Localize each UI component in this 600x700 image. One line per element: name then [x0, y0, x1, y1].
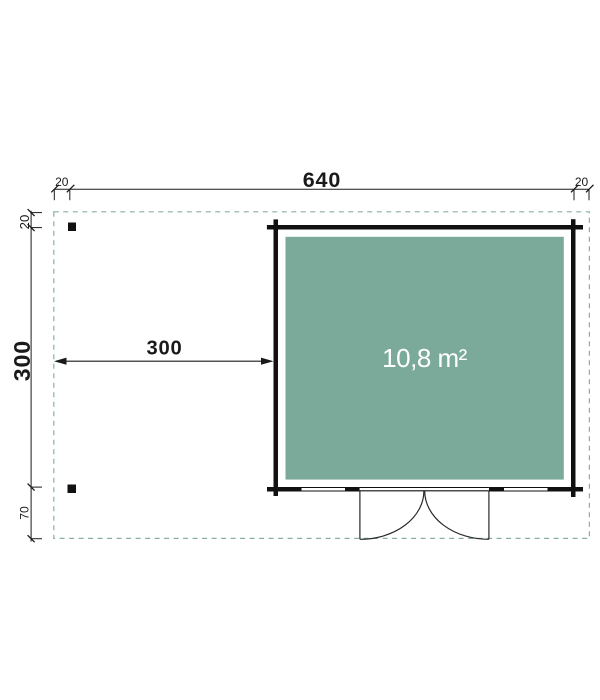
svg-text:70: 70 — [18, 506, 32, 520]
svg-text:10,8 m²: 10,8 m² — [382, 343, 467, 373]
svg-text:20: 20 — [575, 175, 589, 189]
svg-text:640: 640 — [303, 168, 342, 192]
svg-text:20: 20 — [17, 215, 32, 230]
svg-text:300: 300 — [9, 340, 35, 381]
svg-text:20: 20 — [55, 175, 69, 189]
svg-text:300: 300 — [146, 338, 182, 360]
